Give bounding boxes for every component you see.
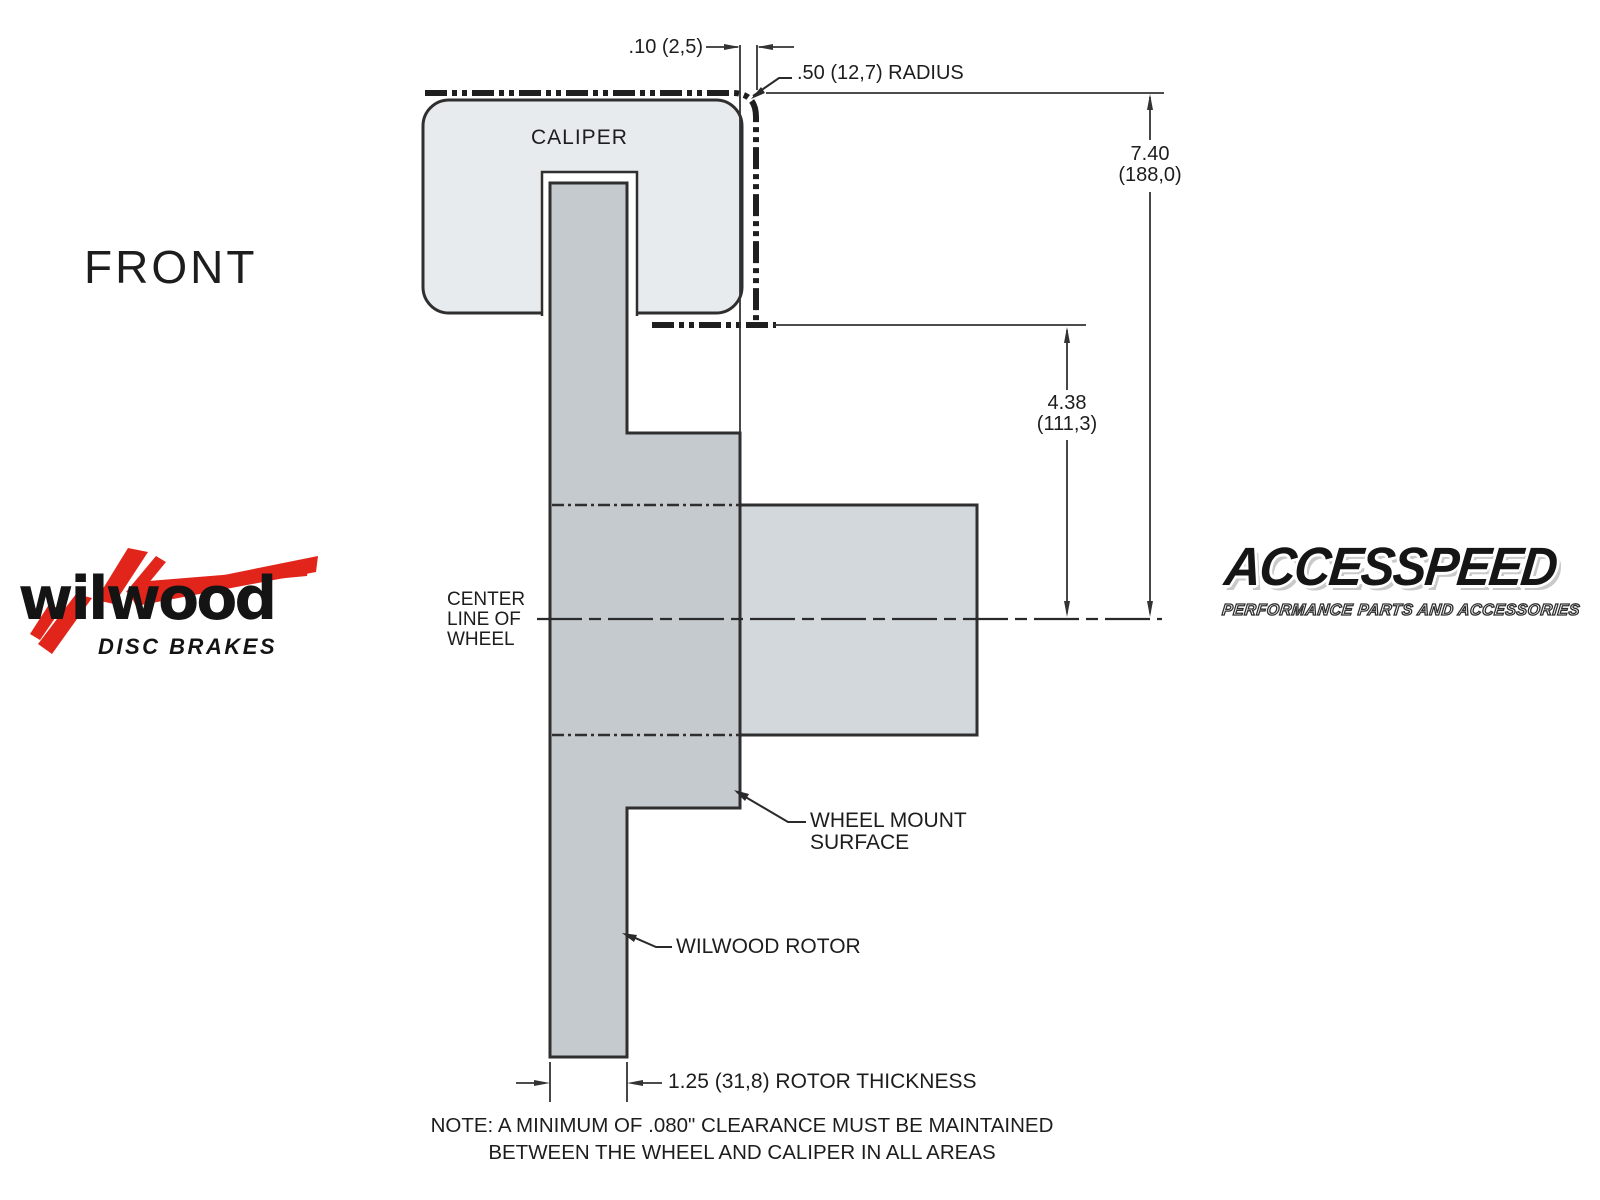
- wheel-mount-line-2: SURFACE: [810, 832, 967, 854]
- wilwood-logo-tagline: DISC BRAKES: [98, 634, 277, 660]
- front-view-label: FRONT: [84, 240, 257, 294]
- mount-height-in: 4.38: [1017, 393, 1117, 414]
- clearance-note: NOTE: A MINIMUM OF .080" CLEARANCE MUST …: [392, 1112, 1092, 1166]
- center-line-label-3: WHEEL: [447, 630, 525, 650]
- rotor-thickness-label: 1.25 (31,8) ROTOR THICKNESS: [668, 1071, 977, 1093]
- gap-dimension-label: .10 (2,5): [608, 36, 703, 59]
- center-line-label-2: LINE OF: [447, 610, 525, 630]
- accesspeed-logo-tagline: PERFORMANCE PARTS AND ACCESSORIES: [1221, 602, 1581, 620]
- wheel-mount-surface-label: WHEEL MOUNT SURFACE: [810, 810, 967, 854]
- accesspeed-logo: ACCESSPEED PERFORMANCE PARTS AND ACCESSO…: [1206, 536, 1596, 646]
- wilwood-logo: wilwood DISC BRAKES: [18, 542, 328, 662]
- clearance-note-line-2: BETWEEN THE WHEEL AND CALIPER IN ALL ARE…: [392, 1139, 1092, 1166]
- clearance-note-line-1: NOTE: A MINIMUM OF .080" CLEARANCE MUST …: [392, 1112, 1092, 1139]
- wilwood-rotor-label: WILWOOD ROTOR: [676, 936, 861, 958]
- wheel-mount-line-1: WHEEL MOUNT: [810, 810, 967, 832]
- center-line-label: CENTER LINE OF WHEEL: [447, 590, 525, 650]
- accesspeed-logo-text: ACCESSPEED: [1222, 536, 1559, 598]
- radius-dimension-label: .50 (12,7) RADIUS: [797, 62, 964, 85]
- caliper-label: CALIPER: [531, 126, 628, 150]
- overall-height-in: 7.40: [1100, 144, 1200, 165]
- technical-drawing-page: FRONT CALIPER .10 (2,5) .50 (12,7) RADIU…: [0, 0, 1600, 1200]
- mount-height-mm: (111,3): [1017, 414, 1117, 435]
- overall-height-mm: (188,0): [1100, 165, 1200, 186]
- center-line-label-1: CENTER: [447, 590, 525, 610]
- wilwood-logo-text: wilwood: [18, 564, 274, 634]
- overall-height-dimension: 7.40 (188,0): [1100, 144, 1200, 186]
- mount-height-dimension: 4.38 (111,3): [1017, 393, 1117, 435]
